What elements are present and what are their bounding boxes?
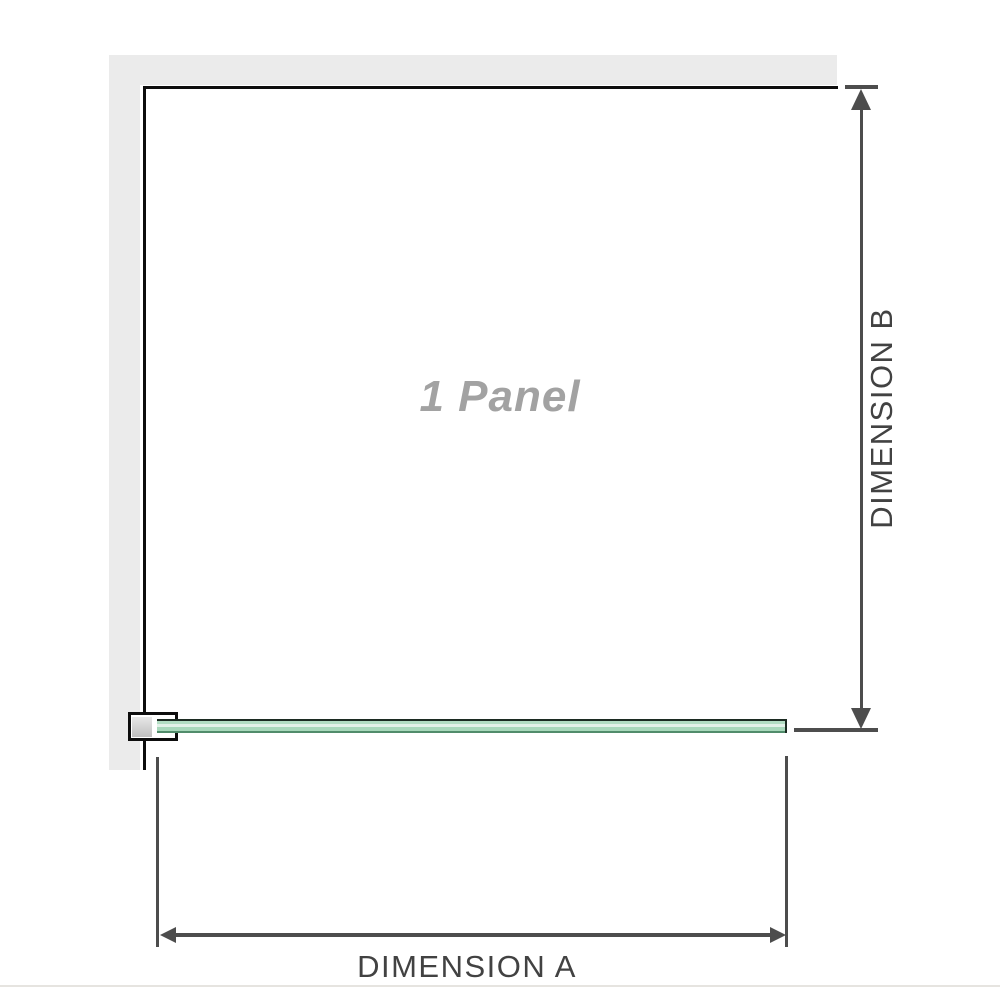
arrow-up-icon: [851, 89, 871, 110]
bottom-divider: [0, 985, 1000, 987]
panel-count-label: 1 Panel: [330, 372, 670, 422]
bracket-insert: [132, 717, 152, 737]
dimension-a-line: [168, 933, 780, 937]
arrow-right-icon: [770, 927, 786, 943]
panel-diagram: 1 Panel DIMENSION B DIMENSION A: [0, 0, 1000, 1000]
wall-inner-edge-left: [143, 86, 146, 770]
arrow-down-icon: [851, 708, 871, 729]
wall-top-band: [109, 55, 837, 85]
dimension-a-label: DIMENSION A: [317, 949, 617, 985]
arrow-left-icon: [160, 927, 176, 943]
dimension-a-extension-left: [156, 757, 159, 947]
dimension-b-label: DIMENSION B: [865, 288, 899, 548]
dimension-b-line: [860, 93, 863, 722]
wall-inner-edge-top: [143, 86, 838, 89]
wall-left-band: [109, 55, 140, 770]
dimension-a-extension-right: [785, 756, 788, 947]
glass-panel-bar: [157, 719, 787, 733]
